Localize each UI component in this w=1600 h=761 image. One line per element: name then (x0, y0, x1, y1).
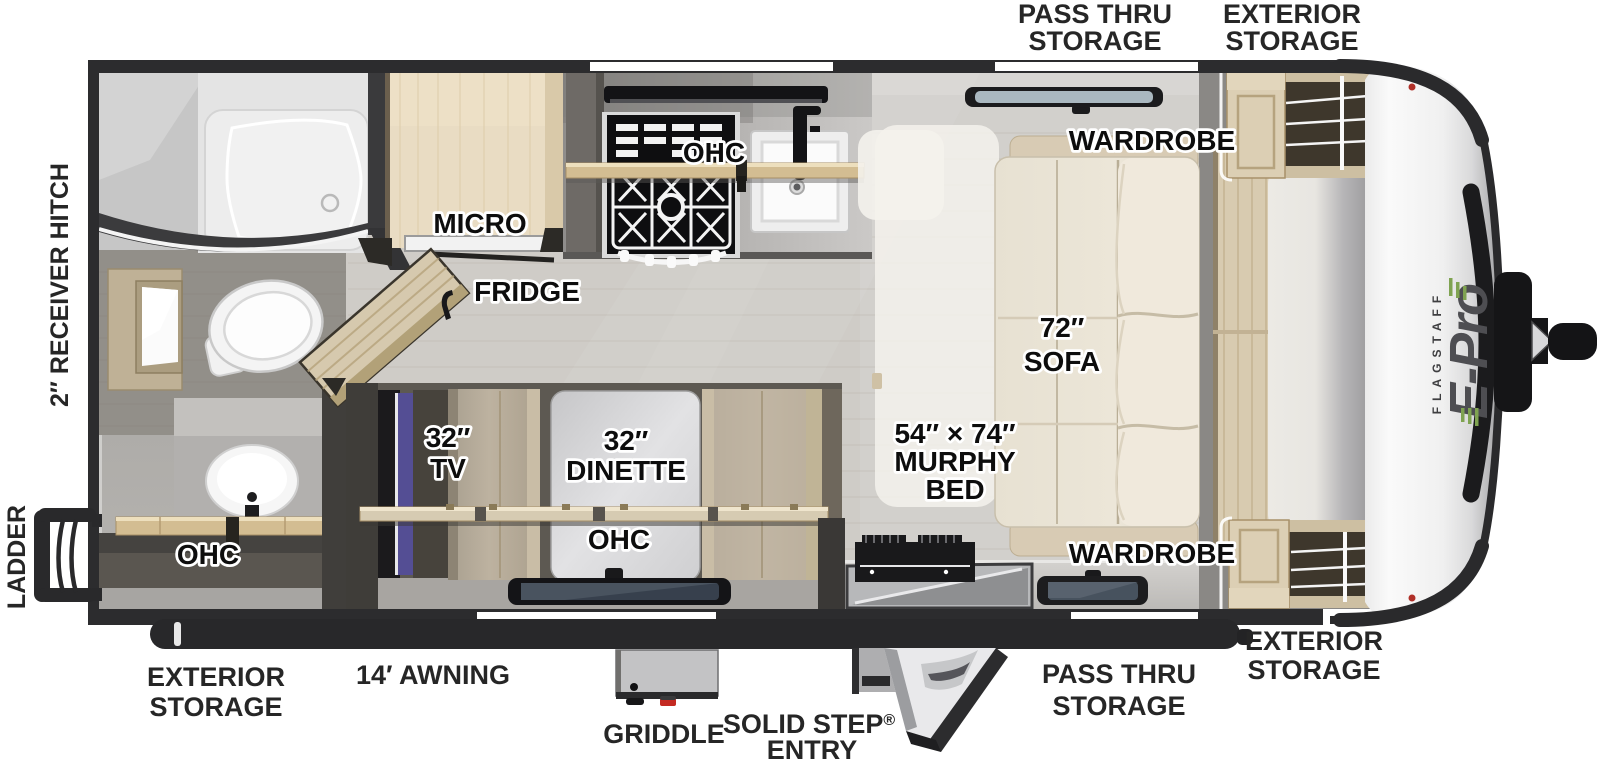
svg-text:STORAGE: STORAGE (1028, 26, 1161, 56)
svg-text:EXTERIOR: EXTERIOR (147, 662, 285, 692)
svg-text:GRIDDLE: GRIDDLE (603, 719, 725, 749)
svg-text:FRIDGE: FRIDGE (474, 276, 580, 307)
svg-text:FLAGSTAFF: FLAGSTAFF (1430, 290, 1444, 414)
svg-text:WARDROBE: WARDROBE (1069, 538, 1235, 569)
svg-text:STORAGE: STORAGE (149, 692, 282, 722)
svg-text:2″ RECEIVER HITCH: 2″ RECEIVER HITCH (46, 163, 74, 407)
svg-text:SOFA: SOFA (1024, 346, 1100, 377)
svg-text:PASS THRU: PASS THRU (1042, 659, 1196, 689)
svg-text:32″: 32″ (426, 422, 471, 453)
svg-text:32″: 32″ (604, 425, 649, 456)
svg-text:EXTERIOR: EXTERIOR (1245, 626, 1383, 656)
svg-text:LADDER: LADDER (3, 505, 31, 609)
svg-text:DINETTE: DINETTE (566, 455, 686, 486)
svg-text:BED: BED (925, 474, 984, 505)
svg-text:STORAGE: STORAGE (1052, 691, 1185, 721)
svg-text:14′ AWNING: 14′ AWNING (356, 660, 510, 690)
svg-text:TV: TV (430, 453, 466, 484)
svg-text:PASS THRU: PASS THRU (1018, 0, 1172, 29)
svg-text:54″ × 74″: 54″ × 74″ (894, 418, 1015, 449)
svg-text:STORAGE: STORAGE (1225, 26, 1358, 56)
svg-text:WARDROBE: WARDROBE (1069, 125, 1235, 156)
svg-text:OHC: OHC (588, 524, 650, 555)
svg-text:OHC: OHC (683, 137, 745, 168)
svg-text:MURPHY: MURPHY (894, 446, 1016, 477)
svg-text:EXTERIOR: EXTERIOR (1223, 0, 1361, 29)
svg-text:72″: 72″ (1040, 312, 1085, 343)
svg-text:STORAGE: STORAGE (1247, 655, 1380, 685)
svg-text:OHC: OHC (177, 539, 239, 570)
svg-text:E-Pro: E-Pro (1439, 284, 1499, 419)
svg-text:ENTRY: ENTRY (767, 735, 858, 761)
svg-text:MICRO: MICRO (433, 208, 526, 239)
